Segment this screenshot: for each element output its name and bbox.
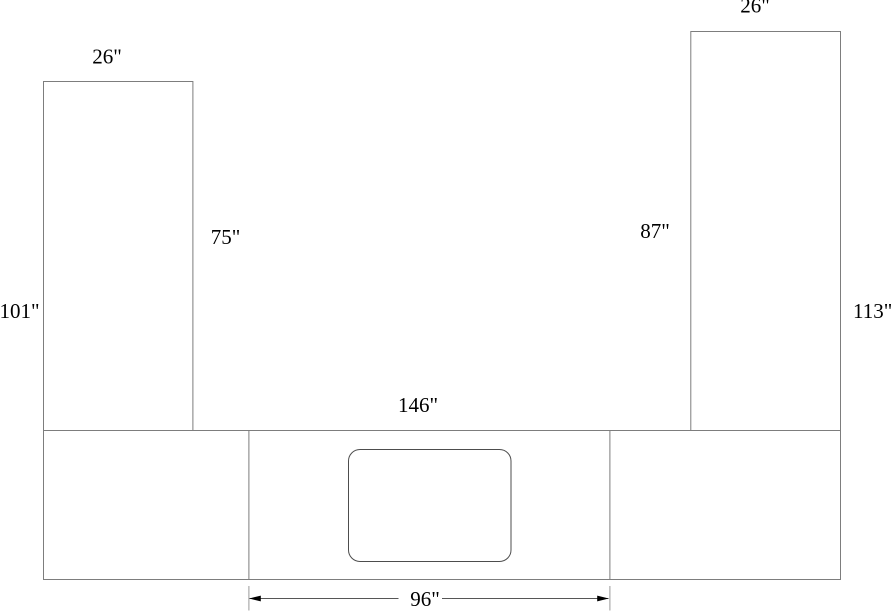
svg-text:26": 26" [92,44,122,68]
svg-text:87": 87" [640,219,670,243]
svg-text:146": 146" [398,393,438,417]
svg-text:113": 113" [853,299,892,323]
svg-text:75": 75" [211,225,241,249]
svg-text:96": 96" [410,587,440,611]
svg-text:26": 26" [740,0,770,18]
svg-text:101": 101" [0,299,40,323]
